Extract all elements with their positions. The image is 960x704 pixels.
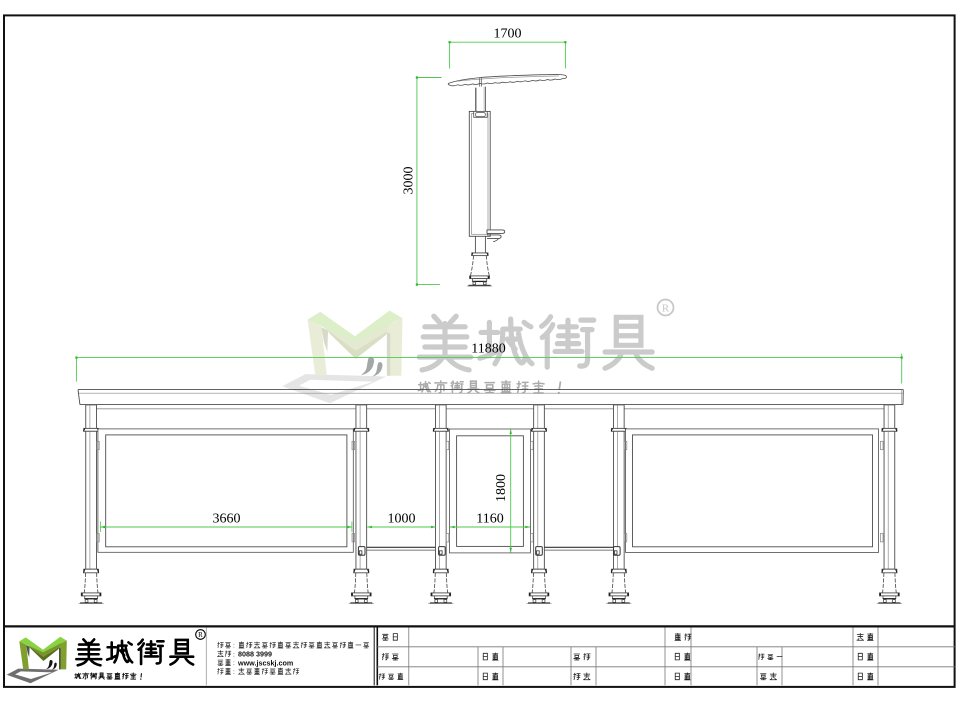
svg-text:3000: 3000: [401, 167, 416, 195]
svg-text::: :: [233, 651, 235, 658]
svg-text::: :: [233, 643, 235, 650]
svg-text:www.jscskj.com: www.jscskj.com: [237, 658, 293, 667]
svg-text:1700: 1700: [494, 27, 522, 42]
svg-text:1800: 1800: [494, 474, 509, 502]
svg-text:R: R: [198, 631, 203, 639]
svg-text:8088 3999: 8088 3999: [238, 650, 272, 659]
svg-text:1160: 1160: [476, 512, 503, 527]
svg-text:1000: 1000: [388, 512, 416, 527]
svg-text::: :: [233, 669, 235, 676]
svg-text:11880: 11880: [471, 342, 505, 357]
svg-text::: :: [233, 660, 235, 667]
svg-text:R: R: [662, 303, 670, 315]
svg-text:3660: 3660: [213, 512, 241, 527]
